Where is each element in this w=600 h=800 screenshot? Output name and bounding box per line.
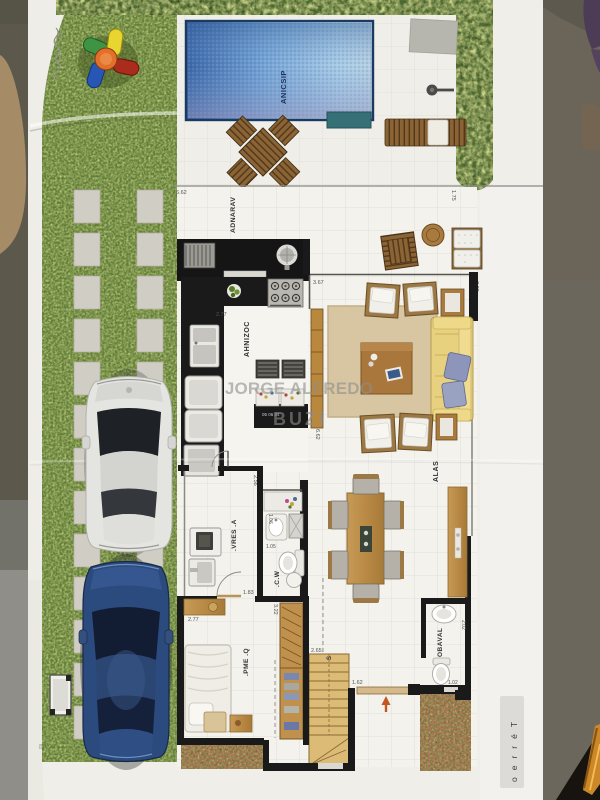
- svg-text:1.62: 1.62: [352, 680, 363, 686]
- svg-text:.PME .Q: .PME .Q: [243, 648, 250, 676]
- svg-text:oerréT: oerréT: [509, 715, 519, 782]
- svg-text:JORGE ALFREDO: JORGE ALFREDO: [225, 379, 373, 398]
- svg-text:6.62: 6.62: [176, 190, 187, 196]
- svg-text:1.83: 1.83: [243, 590, 254, 596]
- svg-text:83: 83: [38, 744, 43, 750]
- svg-text:1.75: 1.75: [450, 190, 456, 201]
- svg-text:S: S: [327, 656, 333, 660]
- svg-text:ANICSIP: ANICSIP: [279, 70, 288, 104]
- svg-text:2.77: 2.77: [188, 617, 199, 623]
- svg-text:OBAVAL: OBAVAL: [437, 628, 444, 657]
- svg-text:AHNIZOC: AHNIZOC: [244, 321, 251, 357]
- svg-text:2.77: 2.77: [216, 312, 227, 318]
- svg-text:3.67: 3.67: [313, 280, 324, 286]
- svg-text:1.02: 1.02: [448, 680, 458, 686]
- svg-text:.C.W: .C.W: [274, 570, 281, 587]
- svg-text:.VRES .A: .VRES .A: [231, 519, 238, 551]
- svg-text:6.62: 6.62: [314, 429, 320, 440]
- svg-text:1.06: 1.06: [267, 514, 273, 524]
- svg-text:ALAS: ALAS: [433, 461, 440, 482]
- svg-text:2.65: 2.65: [311, 648, 322, 654]
- svg-text:BUZI: BUZI: [273, 409, 327, 429]
- svg-text:3.22: 3.22: [272, 604, 278, 615]
- svg-text:ADNARAV: ADNARAV: [230, 197, 237, 233]
- svg-text:2.02: 2.02: [460, 620, 466, 630]
- svg-text:1.05: 1.05: [266, 544, 276, 550]
